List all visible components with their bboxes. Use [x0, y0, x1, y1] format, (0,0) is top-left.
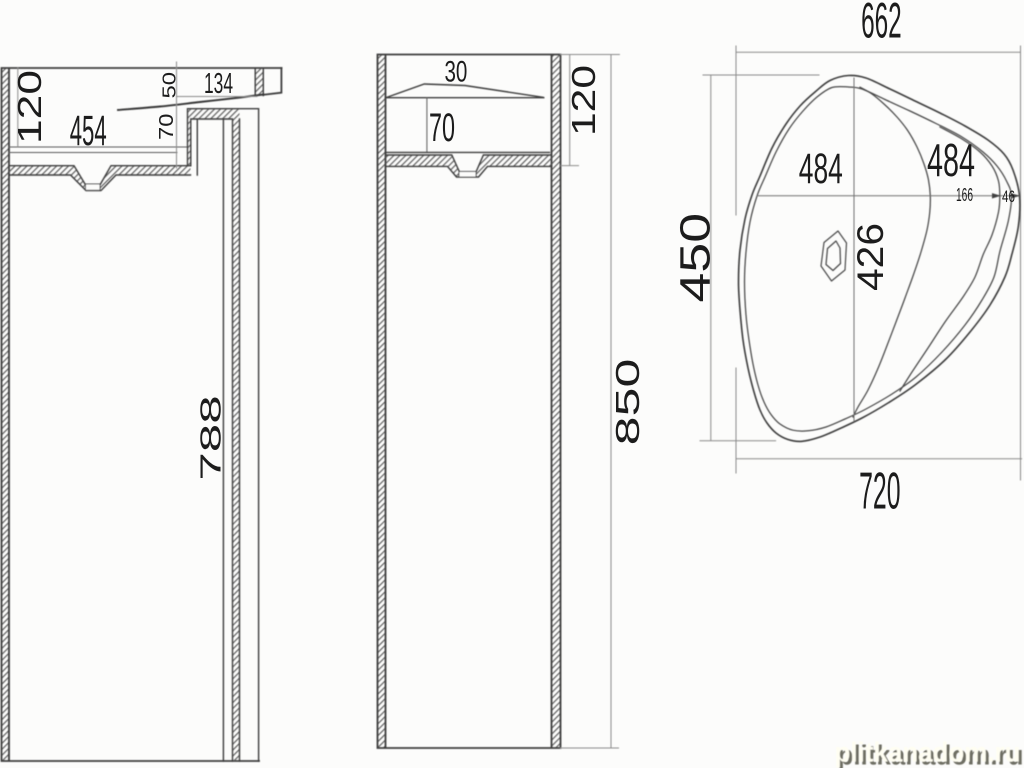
- svg-text:30: 30: [444, 55, 467, 88]
- svg-text:484: 484: [927, 134, 975, 186]
- svg-text:850: 850: [609, 359, 646, 446]
- svg-text:450: 450: [672, 213, 719, 303]
- svg-text:50: 50: [159, 72, 180, 99]
- svg-text:426: 426: [850, 223, 891, 291]
- svg-text:70: 70: [429, 106, 455, 150]
- svg-text:720: 720: [859, 461, 900, 519]
- svg-text:662: 662: [861, 0, 902, 49]
- svg-text:788: 788: [196, 395, 228, 480]
- svg-text:46: 46: [1002, 188, 1015, 206]
- svg-text:plitkanadom.ru: plitkanadom.ru: [835, 737, 1021, 768]
- svg-text:120: 120: [11, 70, 48, 144]
- svg-text:454: 454: [70, 108, 107, 155]
- svg-text:166: 166: [956, 185, 973, 205]
- svg-text:134: 134: [204, 68, 233, 100]
- svg-text:70: 70: [155, 114, 178, 140]
- svg-text:120: 120: [565, 65, 602, 136]
- svg-text:484: 484: [799, 146, 843, 193]
